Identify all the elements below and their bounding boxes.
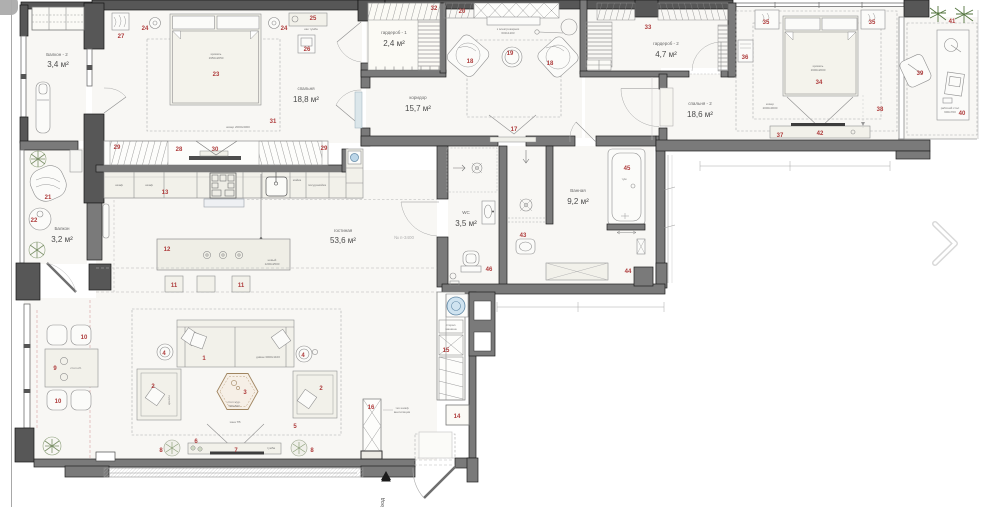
svg-text:26: 26 xyxy=(304,47,311,53)
svg-text:гардероб - 2: гардероб - 2 xyxy=(653,41,679,46)
svg-text:кресло: кресло xyxy=(167,395,171,405)
svg-text:тум: тум xyxy=(622,177,627,181)
svg-text:29: 29 xyxy=(114,145,121,151)
svg-text:600х700: 600х700 xyxy=(944,110,956,114)
svg-text:18,6 м²: 18,6 м² xyxy=(687,110,713,119)
svg-text:45: 45 xyxy=(624,166,631,172)
svg-text:14: 14 xyxy=(454,414,461,420)
svg-text:43: 43 xyxy=(520,233,527,239)
svg-text:12: 12 xyxy=(164,247,171,253)
svg-text:19: 19 xyxy=(507,51,514,57)
svg-text:коридор: коридор xyxy=(409,95,427,100)
svg-text:тумба: тумба xyxy=(267,446,276,450)
svg-text:37: 37 xyxy=(777,133,784,139)
svg-text:33: 33 xyxy=(645,25,652,31)
svg-text:3,4 м²: 3,4 м² xyxy=(47,60,69,69)
svg-text:Балкон - 2: Балкон - 2 xyxy=(46,52,68,57)
svg-text:спальня: спальня xyxy=(297,86,315,91)
svg-text:27: 27 xyxy=(118,34,125,40)
svg-text:посудомойка: посудомойка xyxy=(308,183,326,187)
svg-text:36: 36 xyxy=(742,55,749,61)
svg-text:Ванная: Ванная xyxy=(570,188,586,193)
svg-text:28: 28 xyxy=(176,147,183,153)
svg-text:2000х3000: 2000х3000 xyxy=(763,106,778,110)
svg-text:WC: WC xyxy=(462,210,470,215)
svg-text:шкаф: шкаф xyxy=(145,183,153,187)
svg-text:17: 17 xyxy=(511,127,518,133)
svg-text:4,7 м²: 4,7 м² xyxy=(655,50,677,59)
svg-text:15: 15 xyxy=(443,348,450,354)
svg-text:40: 40 xyxy=(959,111,966,117)
svg-text:11: 11 xyxy=(238,283,245,289)
svg-text:№ п-3400: № п-3400 xyxy=(394,235,415,240)
svg-text:39: 39 xyxy=(917,71,924,77)
svg-text:25: 25 xyxy=(310,16,317,22)
svg-text:вентиляция: вентиляция xyxy=(394,410,411,414)
svg-text:34: 34 xyxy=(816,80,823,86)
svg-text:603х1203: 603х1203 xyxy=(501,31,515,35)
svg-text:шкаф: шкаф xyxy=(115,183,123,187)
svg-text:32: 32 xyxy=(431,6,438,12)
svg-text:31: 31 xyxy=(270,119,277,125)
svg-text:3,5 м²: 3,5 м² xyxy=(455,219,477,228)
svg-text:машина: машина xyxy=(445,327,456,331)
svg-text:10: 10 xyxy=(55,399,62,405)
svg-text:Балкон: Балкон xyxy=(54,226,70,231)
svg-text:спальня - 2: спальня - 2 xyxy=(688,101,712,106)
svg-text:как тумба: как тумба xyxy=(304,27,318,31)
svg-text:20: 20 xyxy=(459,9,466,15)
svg-text:700х600: 700х600 xyxy=(228,404,240,408)
svg-text:11: 11 xyxy=(171,283,178,289)
svg-text:18: 18 xyxy=(547,61,554,67)
svg-text:41: 41 xyxy=(949,19,956,25)
svg-text:53,6 м²: 53,6 м² xyxy=(330,236,356,245)
svg-text:1950х2050: 1950х2050 xyxy=(209,56,224,60)
svg-text:46: 46 xyxy=(486,267,493,273)
svg-text:1600х2000: 1600х2000 xyxy=(811,68,826,72)
svg-text:Вход: Вход xyxy=(380,498,386,507)
svg-text:диван 3000х1100: диван 3000х1100 xyxy=(256,355,280,359)
svg-text:гостиная: гостиная xyxy=(334,228,353,233)
svg-text:24: 24 xyxy=(281,26,288,32)
svg-text:ковер 2000х3000: ковер 2000х3000 xyxy=(226,125,250,129)
svg-text:16: 16 xyxy=(368,405,375,411)
svg-text:35: 35 xyxy=(869,20,876,26)
svg-text:23: 23 xyxy=(213,72,220,78)
svg-text:21: 21 xyxy=(45,195,52,201)
svg-text:2,4 м²: 2,4 м² xyxy=(383,39,405,48)
svg-text:29: 29 xyxy=(321,146,328,152)
svg-text:18,8 м²: 18,8 м² xyxy=(293,95,319,104)
svg-text:35: 35 xyxy=(763,20,770,26)
svg-text:13: 13 xyxy=(162,190,169,196)
svg-text:15,7 м²: 15,7 м² xyxy=(405,104,431,113)
svg-text:гардероб - 1: гардероб - 1 xyxy=(381,30,407,35)
svg-text:42: 42 xyxy=(817,131,824,137)
svg-text:24: 24 xyxy=(142,26,149,32)
svg-text:18: 18 xyxy=(467,59,474,65)
svg-text:1200х2500: 1200х2500 xyxy=(265,262,280,266)
svg-text:10: 10 xyxy=(81,335,88,341)
svg-text:3,2 м²: 3,2 м² xyxy=(51,235,73,244)
svg-text:стол об.: стол об. xyxy=(70,366,81,370)
svg-text:44: 44 xyxy=(625,269,632,275)
svg-text:мойка: мойка xyxy=(293,178,302,182)
svg-text:зона ТВ: зона ТВ xyxy=(229,420,240,424)
svg-text:9,2 м²: 9,2 м² xyxy=(567,197,589,206)
svg-text:22: 22 xyxy=(31,218,38,224)
svg-text:38: 38 xyxy=(877,107,884,113)
